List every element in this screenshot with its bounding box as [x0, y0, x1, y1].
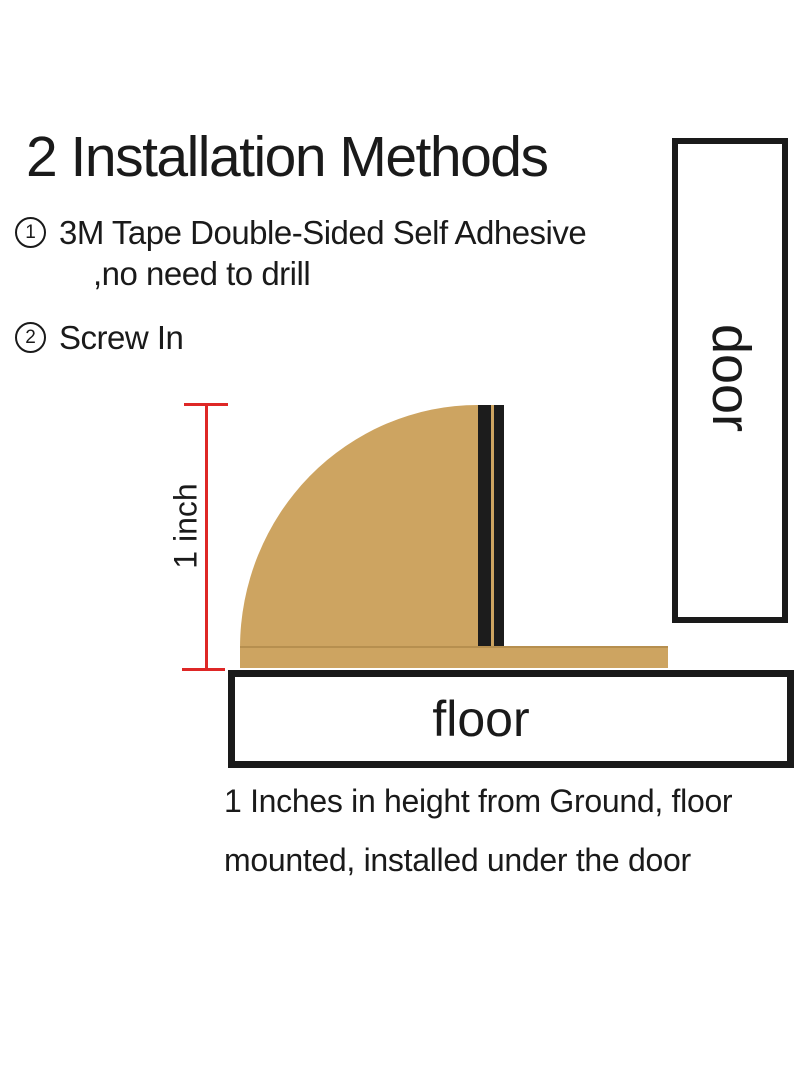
door-label: door [700, 324, 762, 432]
page-title: 2 Installation Methods [26, 124, 548, 190]
caption-line-2: mounted, installed under the door [224, 841, 732, 879]
circled-2-icon: 2 [15, 322, 46, 353]
installation-infographic: 2 Installation Methods 1 3M Tape Double-… [0, 0, 800, 1091]
door-stop-bumper-strip-2 [494, 405, 504, 648]
caption: 1 Inches in height from Ground, floor mo… [224, 782, 732, 900]
method-screw-line-1: Screw In [59, 317, 183, 358]
measure-bottom-cap [182, 668, 225, 671]
measure-label: 1 inch [168, 483, 205, 568]
method-adhesive-line-1: 3M Tape Double-Sided Self Adhesive [59, 212, 586, 253]
caption-line-1: 1 Inches in height from Ground, floor [224, 782, 732, 820]
method-item-screw: 2 Screw In [15, 317, 183, 358]
method-item-adhesive: 1 3M Tape Double-Sided Self Adhesive ,no… [15, 212, 586, 294]
door-stop-body [240, 405, 478, 648]
door-stop-base-plate [240, 646, 668, 668]
measure-line [205, 403, 208, 671]
floor-rect: floor [228, 670, 794, 768]
method-screw-text: Screw In [59, 317, 183, 358]
method-adhesive-line-2: ,no need to drill [59, 253, 586, 294]
door-stop-bumper-strip-1 [478, 405, 491, 648]
floor-label: floor [432, 694, 529, 744]
circled-1-icon: 1 [15, 217, 46, 248]
method-adhesive-text: 3M Tape Double-Sided Self Adhesive ,no n… [59, 212, 586, 294]
